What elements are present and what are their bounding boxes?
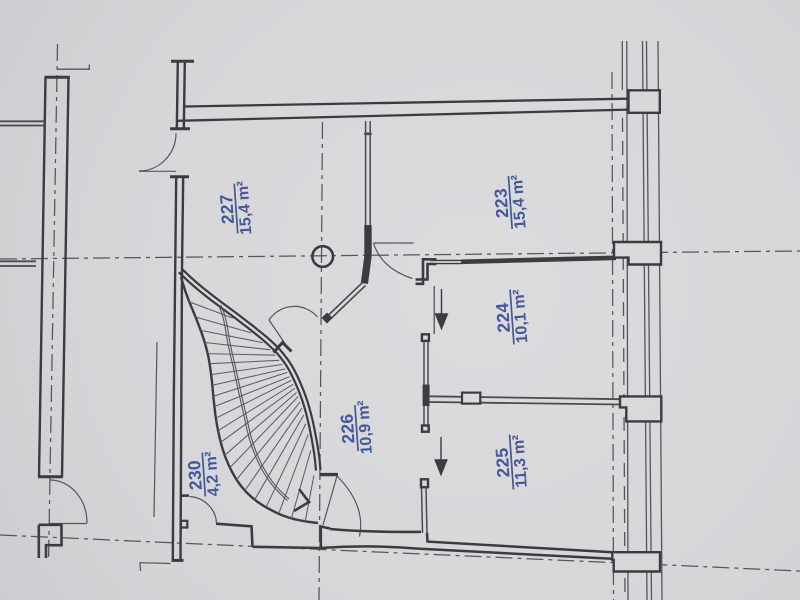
svg-text:4,2 m²: 4,2 m² bbox=[203, 451, 223, 497]
